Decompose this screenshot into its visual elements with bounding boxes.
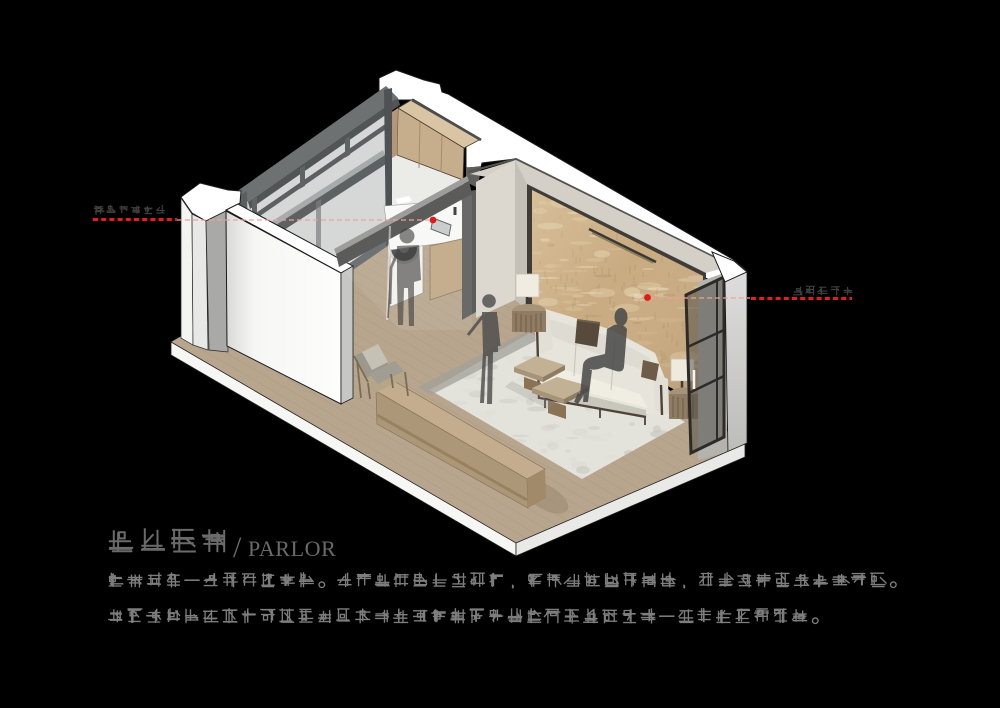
svg-text:PARLOR: PARLOR [248,536,336,561]
svg-text:/: / [233,531,242,564]
